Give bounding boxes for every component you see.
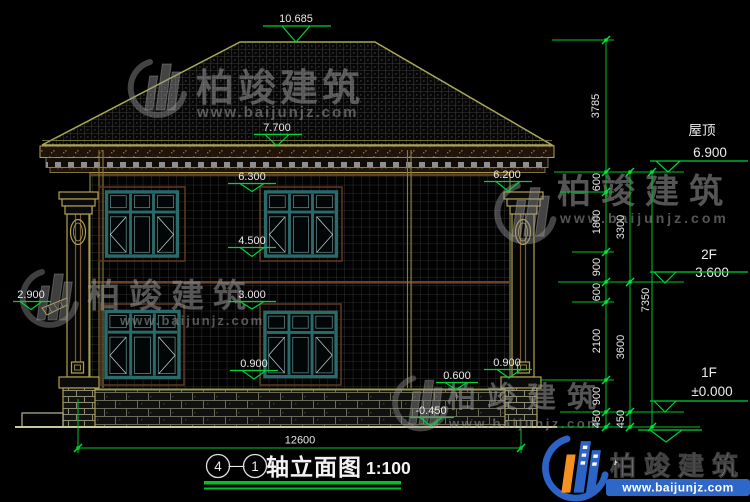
dim-inner-4: 2100	[591, 329, 603, 353]
level-value: 0.900	[493, 357, 521, 369]
brand-logo-icon	[545, 439, 605, 498]
level-value: 0.600	[443, 370, 471, 382]
axis-start-number: 4	[214, 459, 222, 474]
ground-elevation-symbol	[638, 430, 702, 442]
roof-floor-label: 屋顶	[689, 123, 716, 138]
cornice	[40, 146, 554, 173]
dim-mid-0: 3300	[615, 215, 627, 239]
pedestal-cap	[59, 377, 99, 388]
dim-inner-2: 900	[591, 258, 603, 276]
title-underline-thick	[204, 481, 401, 485]
level-value: 0.900	[240, 358, 268, 370]
axis-end-number: 1	[251, 459, 259, 474]
f2-label: 2F	[701, 247, 717, 262]
dim-inner-6: 450	[591, 410, 603, 428]
watermark-roof: 柏竣建筑 www.baijunjz.com	[131, 62, 364, 121]
dimension-chain-labels: 3785 600 1800 900 600 2100 900 450 3300 …	[590, 94, 652, 428]
level-value: 10.685	[279, 13, 313, 25]
capital	[59, 192, 98, 199]
level-value: 7.700	[263, 122, 291, 134]
brand-logo: 柏竣建筑 www.baijunjz.com	[545, 439, 750, 498]
dim-height-above-eave: 3785	[590, 94, 602, 118]
title-underline-thin	[204, 488, 401, 490]
dim-inner-3: 600	[591, 283, 603, 301]
dimension-chain-lines	[606, 40, 652, 427]
roof-floor-elev: 6.900	[693, 145, 727, 160]
watermark-site: www.baijunjz.com	[559, 210, 729, 226]
dim-inner-1: 1800	[591, 210, 603, 234]
brand-name: 柏竣建筑	[610, 451, 746, 481]
drawing-title: 轴立面图	[266, 454, 362, 480]
title-block: 4 — 1 轴立面图 1:100	[204, 454, 411, 490]
drawing-scale: 1:100	[366, 458, 411, 478]
drawing-canvas: 柏竣建筑 www.baijunjz.com 柏竣建筑 www.baijunjz.…	[0, 0, 750, 502]
dim-mid-1: 3600	[615, 335, 627, 359]
pedestal-brick	[63, 388, 95, 427]
axis-separator: —	[229, 458, 245, 475]
level-value: 3.000	[238, 289, 266, 301]
level-marker-ridge: 10.685	[263, 13, 331, 42]
watermark-site: www.baijunjz.com	[196, 104, 358, 121]
level-value: 2.900	[17, 289, 45, 301]
watermark-site: www.baijunjz.com	[448, 416, 601, 431]
dim-mid-2: 450	[615, 410, 627, 428]
level-value: -0.450	[415, 405, 446, 417]
window-2f-left	[107, 192, 178, 256]
dim-total-height: 7350	[640, 288, 652, 312]
watermark-wall: 柏竣建筑 www.baijunjz.com	[23, 272, 264, 328]
f1-elev: ±0.000	[691, 384, 732, 399]
dim-inner-5: 900	[591, 387, 603, 405]
window-2f-middle	[266, 192, 337, 256]
entry-step	[22, 413, 63, 427]
watermark-site: www.baijunjz.com	[119, 313, 264, 328]
dentil-band	[46, 158, 548, 168]
window-1f-middle	[265, 312, 336, 376]
dim-inner-0: 600	[591, 173, 603, 191]
cad-elevation-drawing: 柏竣建筑 www.baijunjz.com 柏竣建筑 www.baijunjz.…	[0, 0, 750, 502]
dim-total-width: 12600	[285, 435, 316, 447]
f1-label: 1F	[701, 365, 717, 380]
watermark-brand: 柏竣建筑	[447, 380, 607, 414]
level-value: 4.500	[238, 235, 266, 247]
watermark-brand: 柏竣建筑	[87, 277, 255, 314]
level-value: 6.300	[238, 171, 266, 183]
wall-top-band	[90, 174, 510, 176]
level-value: 6.200	[493, 169, 521, 181]
brand-site: www.baijunjz.com	[621, 481, 734, 495]
